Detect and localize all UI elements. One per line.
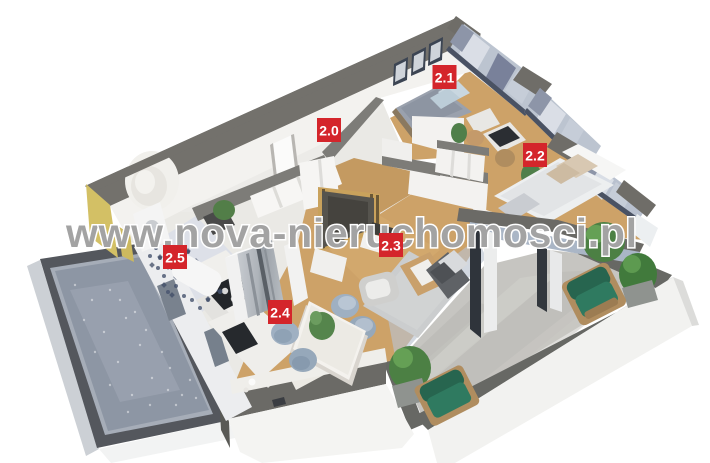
svg-text:2.0: 2.0	[319, 123, 339, 139]
svg-text:2.4: 2.4	[270, 305, 290, 321]
svg-text:2.1: 2.1	[435, 70, 455, 86]
svg-text:2.5: 2.5	[165, 250, 185, 266]
svg-text:2.3: 2.3	[381, 238, 401, 254]
svg-text:2.2: 2.2	[525, 148, 545, 164]
svg-text:www.nova-nieruchomosci.pl: www.nova-nieruchomosci.pl	[65, 210, 636, 256]
